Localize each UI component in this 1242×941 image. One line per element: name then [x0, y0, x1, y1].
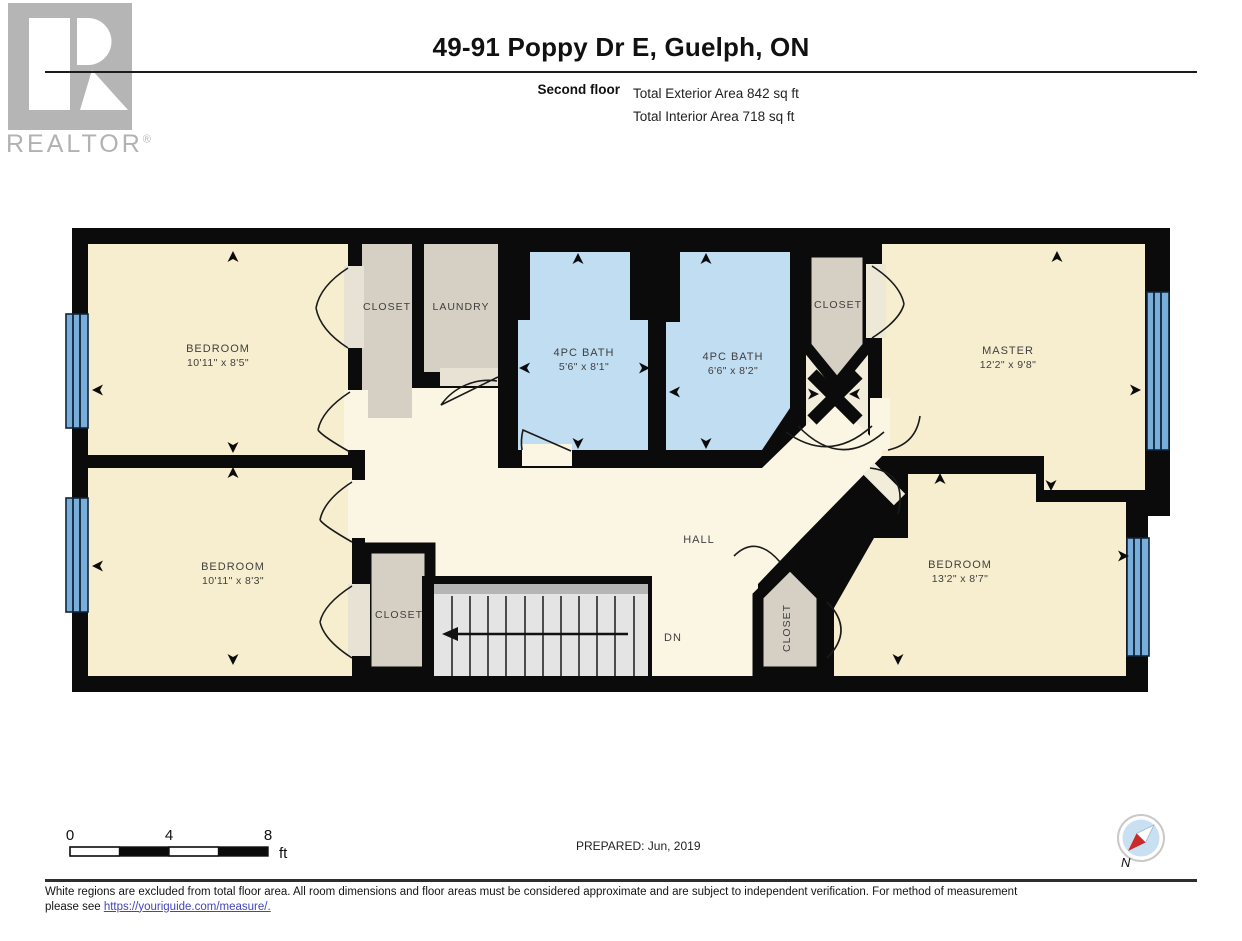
label-closet-master: CLOSET: [814, 299, 862, 311]
prepared-date: PREPARED: Jun, 2019: [576, 839, 701, 853]
scale-bar: 0 4 8 ft: [66, 827, 288, 862]
label-stairs-dn: DN: [664, 632, 682, 644]
label-bedroom-bottom-left: BEDROOM: [201, 561, 265, 573]
window-bedroom-bottom-right: [1127, 538, 1149, 656]
scale-tick-4: 4: [165, 827, 173, 844]
scale-unit: ft: [279, 845, 288, 862]
compass-icon: N: [1118, 815, 1164, 870]
window-bedroom-top-left: [66, 314, 88, 428]
floor-plan: BEDROOM 10'11" x 8'5" CLOSET LAUNDRY 4PC…: [0, 0, 1242, 941]
label-hall: HALL: [683, 534, 715, 546]
dims-bedroom-top-left: 10'11" x 8'5": [187, 357, 249, 369]
label-master: MASTER: [982, 345, 1034, 357]
footer-divider: [45, 879, 1197, 882]
label-closet-top: CLOSET: [363, 301, 411, 313]
dims-bath-1: 5'6" x 8'1": [559, 361, 609, 373]
dims-master: 12'2" x 9'8": [980, 359, 1037, 371]
dims-bedroom-bottom-left: 10'11" x 8'3": [202, 575, 264, 587]
disclaimer: White regions are excluded from total fl…: [45, 885, 1017, 914]
disclaimer-line-1: White regions are excluded from total fl…: [45, 885, 1017, 900]
label-bedroom-top-left: BEDROOM: [186, 343, 250, 355]
label-bedroom-bottom-right: BEDROOM: [928, 559, 992, 571]
label-laundry: LAUNDRY: [433, 301, 490, 313]
label-closet-bottom: CLOSET: [375, 609, 423, 621]
label-bath-2: 4PC BATH: [703, 351, 764, 363]
room-closet-top: [362, 244, 412, 418]
scale-tick-0: 0: [66, 827, 74, 844]
compass-north-label: N: [1121, 855, 1131, 870]
dims-bath-2: 6'6" x 8'2": [708, 365, 758, 377]
stairs: [422, 576, 652, 692]
disclaimer-line-2: please see https://youriguide.com/measur…: [45, 900, 1017, 915]
label-bath-1: 4PC BATH: [554, 347, 615, 359]
measure-link[interactable]: https://youriguide.com/measure/.: [104, 901, 271, 913]
scale-tick-8: 8: [264, 827, 272, 844]
room-closet-master: [806, 252, 868, 384]
window-master: [1147, 292, 1169, 450]
label-closet-hall: CLOSET: [781, 604, 793, 652]
dims-bedroom-bottom-right: 13'2" x 8'7": [932, 573, 989, 585]
window-bedroom-bottom-left: [66, 498, 88, 612]
